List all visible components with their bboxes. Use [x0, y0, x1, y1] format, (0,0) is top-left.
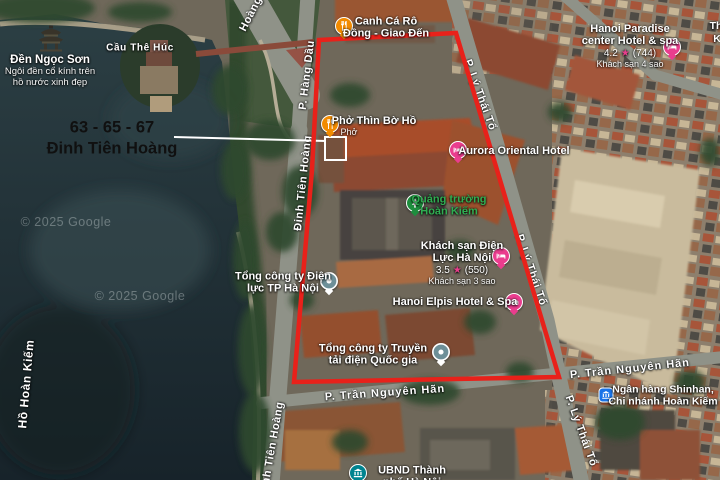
- partial-poi-label: K: [713, 34, 720, 46]
- rating-value: 3.5: [436, 265, 450, 276]
- address-line1: 63 - 65 - 67: [47, 117, 178, 138]
- poi-title: Khách sạn Điện: [421, 240, 504, 252]
- poi-label-evn-hanoi[interactable]: Tổng công ty Điện lực TP Hà Nội: [235, 271, 331, 296]
- poi-title: Tổng công ty Truyền: [319, 343, 427, 355]
- government-marker-ubnd[interactable]: [349, 464, 367, 480]
- poi-category: Khách sạn 4 sao: [582, 59, 679, 69]
- company-marker-evn-npt[interactable]: [432, 343, 450, 361]
- poi-description: hồ nước xinh đẹp: [5, 77, 95, 88]
- temple-icon: [36, 26, 66, 57]
- poi-title: Canh Cá Rô: [343, 16, 429, 28]
- government-building-icon: [353, 468, 363, 478]
- rating-row: 4.2★(744): [582, 48, 679, 59]
- poi-title: tải điện Quốc gia: [319, 355, 427, 367]
- poi-category-pho: Phở: [341, 127, 358, 137]
- poi-title: Tổng công ty Điện: [235, 271, 331, 283]
- poi-title: Đồng - Giao Đến: [343, 28, 429, 40]
- star-icon: ★: [453, 265, 462, 276]
- poi-title: Ngân hàng Shinhan,: [608, 384, 717, 396]
- poi-title: Hanoi Paradise: [582, 23, 679, 35]
- poi-label-canh-ca-ro[interactable]: Canh Cá Rô Đồng - Giao Đến: [343, 16, 429, 41]
- poi-category: Khách sạn 3 sao: [421, 276, 504, 286]
- rating-value: 4.2: [604, 48, 618, 59]
- poi-title: Đền Ngọc Sơn: [5, 54, 95, 67]
- poi-label-aurora[interactable]: Aurora Oriental Hotel: [458, 145, 569, 157]
- rating-row: 3.5★(550): [421, 265, 504, 276]
- callout-line: [174, 137, 326, 141]
- poi-label-dien-luc-hotel[interactable]: Khách sạn Điện Lực Hà Nội 3.5★(550) Khác…: [421, 240, 504, 286]
- poi-title: Phở Thìn Bờ Hồ: [332, 115, 417, 127]
- review-count: (744): [633, 48, 656, 59]
- star-icon: ★: [621, 48, 630, 59]
- poi-label-evn-npt[interactable]: Tổng công ty Truyền tải điện Quốc gia: [319, 343, 427, 368]
- address-callout: 63 - 65 - 67 Đinh Tiên Hoàng: [47, 117, 178, 158]
- review-count: (550): [465, 265, 488, 276]
- address-line2: Đinh Tiên Hoàng: [47, 138, 178, 159]
- map-canvas[interactable]: Cầu Thê Húc Hoàng P. Hàng Dầu Đinh Tiên …: [0, 0, 720, 480]
- property-outline: [325, 137, 346, 160]
- poi-title: Lực Hà Nội: [421, 252, 504, 264]
- company-dot-icon: [433, 344, 449, 360]
- boundary-overlay: [0, 0, 720, 480]
- poi-label-shinhan-bank[interactable]: Ngân hàng Shinhan, Chi nhánh Hoàn Kiếm: [608, 384, 717, 408]
- poi-title: center Hotel & spa: [582, 35, 679, 47]
- poi-label-quang-truong[interactable]: Quảng trường Hoàn Kiếm: [411, 194, 486, 219]
- poi-title: lực TP Hà Nội: [235, 283, 331, 295]
- poi-title: Hoàn Kiếm: [411, 206, 486, 218]
- poi-label-den-ngoc-son[interactable]: Đền Ngọc Sơn Ngôi đền cổ kính trên hồ nư…: [5, 54, 95, 88]
- poi-title: UBND Thành: [378, 465, 446, 477]
- poi-label-hanoi-paradise[interactable]: Hanoi Paradise center Hotel & spa 4.2★(7…: [582, 23, 679, 69]
- poi-label-hanoi-elpis[interactable]: Hanoi Elpis Hotel & Spa: [393, 296, 518, 308]
- partial-poi-label: Th: [710, 21, 720, 33]
- poi-description: Ngôi đền cổ kính trên: [5, 67, 95, 78]
- poi-label-pho-thin[interactable]: Phở Thìn Bờ Hồ: [332, 115, 417, 127]
- poi-title: Quảng trường: [411, 194, 486, 206]
- poi-label-ubnd[interactable]: UBND Thành phố Hà Nội: [378, 465, 446, 480]
- poi-title: Chi nhánh Hoàn Kiếm: [608, 396, 717, 408]
